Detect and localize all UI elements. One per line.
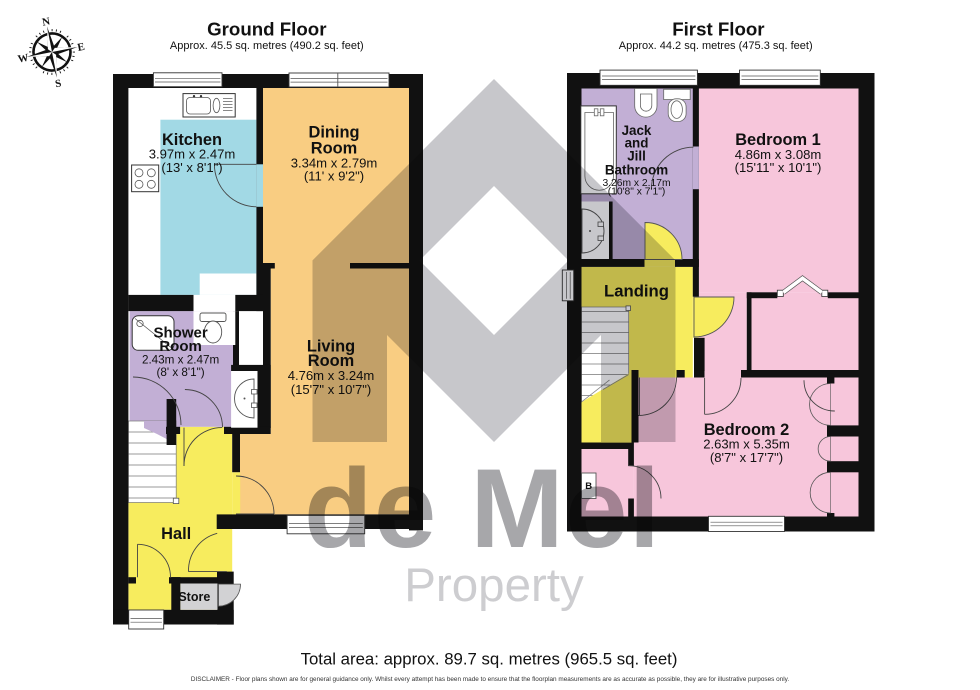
- svg-text:(10'8" x 7'1"): (10'8" x 7'1"): [608, 187, 666, 198]
- svg-text:Total area: approx. 89.7 sq. m: Total area: approx. 89.7 sq. metres (965…: [301, 650, 678, 669]
- svg-text:(15'11" x 10'1"): (15'11" x 10'1"): [735, 160, 822, 175]
- svg-text:Approx. 45.5 sq. metres (490.2: Approx. 45.5 sq. metres (490.2 sq. feet): [170, 40, 364, 52]
- svg-text:Property: Property: [404, 559, 584, 612]
- svg-text:(8' x 8'1"): (8' x 8'1"): [156, 366, 204, 379]
- svg-text:(13' x 8'1"): (13' x 8'1"): [161, 160, 222, 175]
- svg-text:de Mel: de Mel: [304, 446, 662, 571]
- svg-text:Bathroom: Bathroom: [605, 162, 668, 177]
- svg-text:(8'7" x 17'7"): (8'7" x 17'7"): [710, 450, 783, 465]
- svg-text:Store: Store: [178, 590, 210, 604]
- svg-text:First Floor: First Floor: [672, 18, 764, 39]
- svg-text:DISCLAIMER - Floor plans show: DISCLAIMER - Floor plans shown are for g…: [191, 676, 790, 683]
- svg-text:(11' x 9'2"): (11' x 9'2"): [304, 168, 364, 183]
- svg-text:Ground Floor: Ground Floor: [207, 18, 326, 39]
- svg-text:Hall: Hall: [161, 525, 191, 543]
- svg-text:2.43m x 2.47m: 2.43m x 2.47m: [142, 353, 219, 366]
- svg-text:Approx. 44.2 sq. metres (475.3: Approx. 44.2 sq. metres (475.3 sq. feet): [619, 40, 813, 52]
